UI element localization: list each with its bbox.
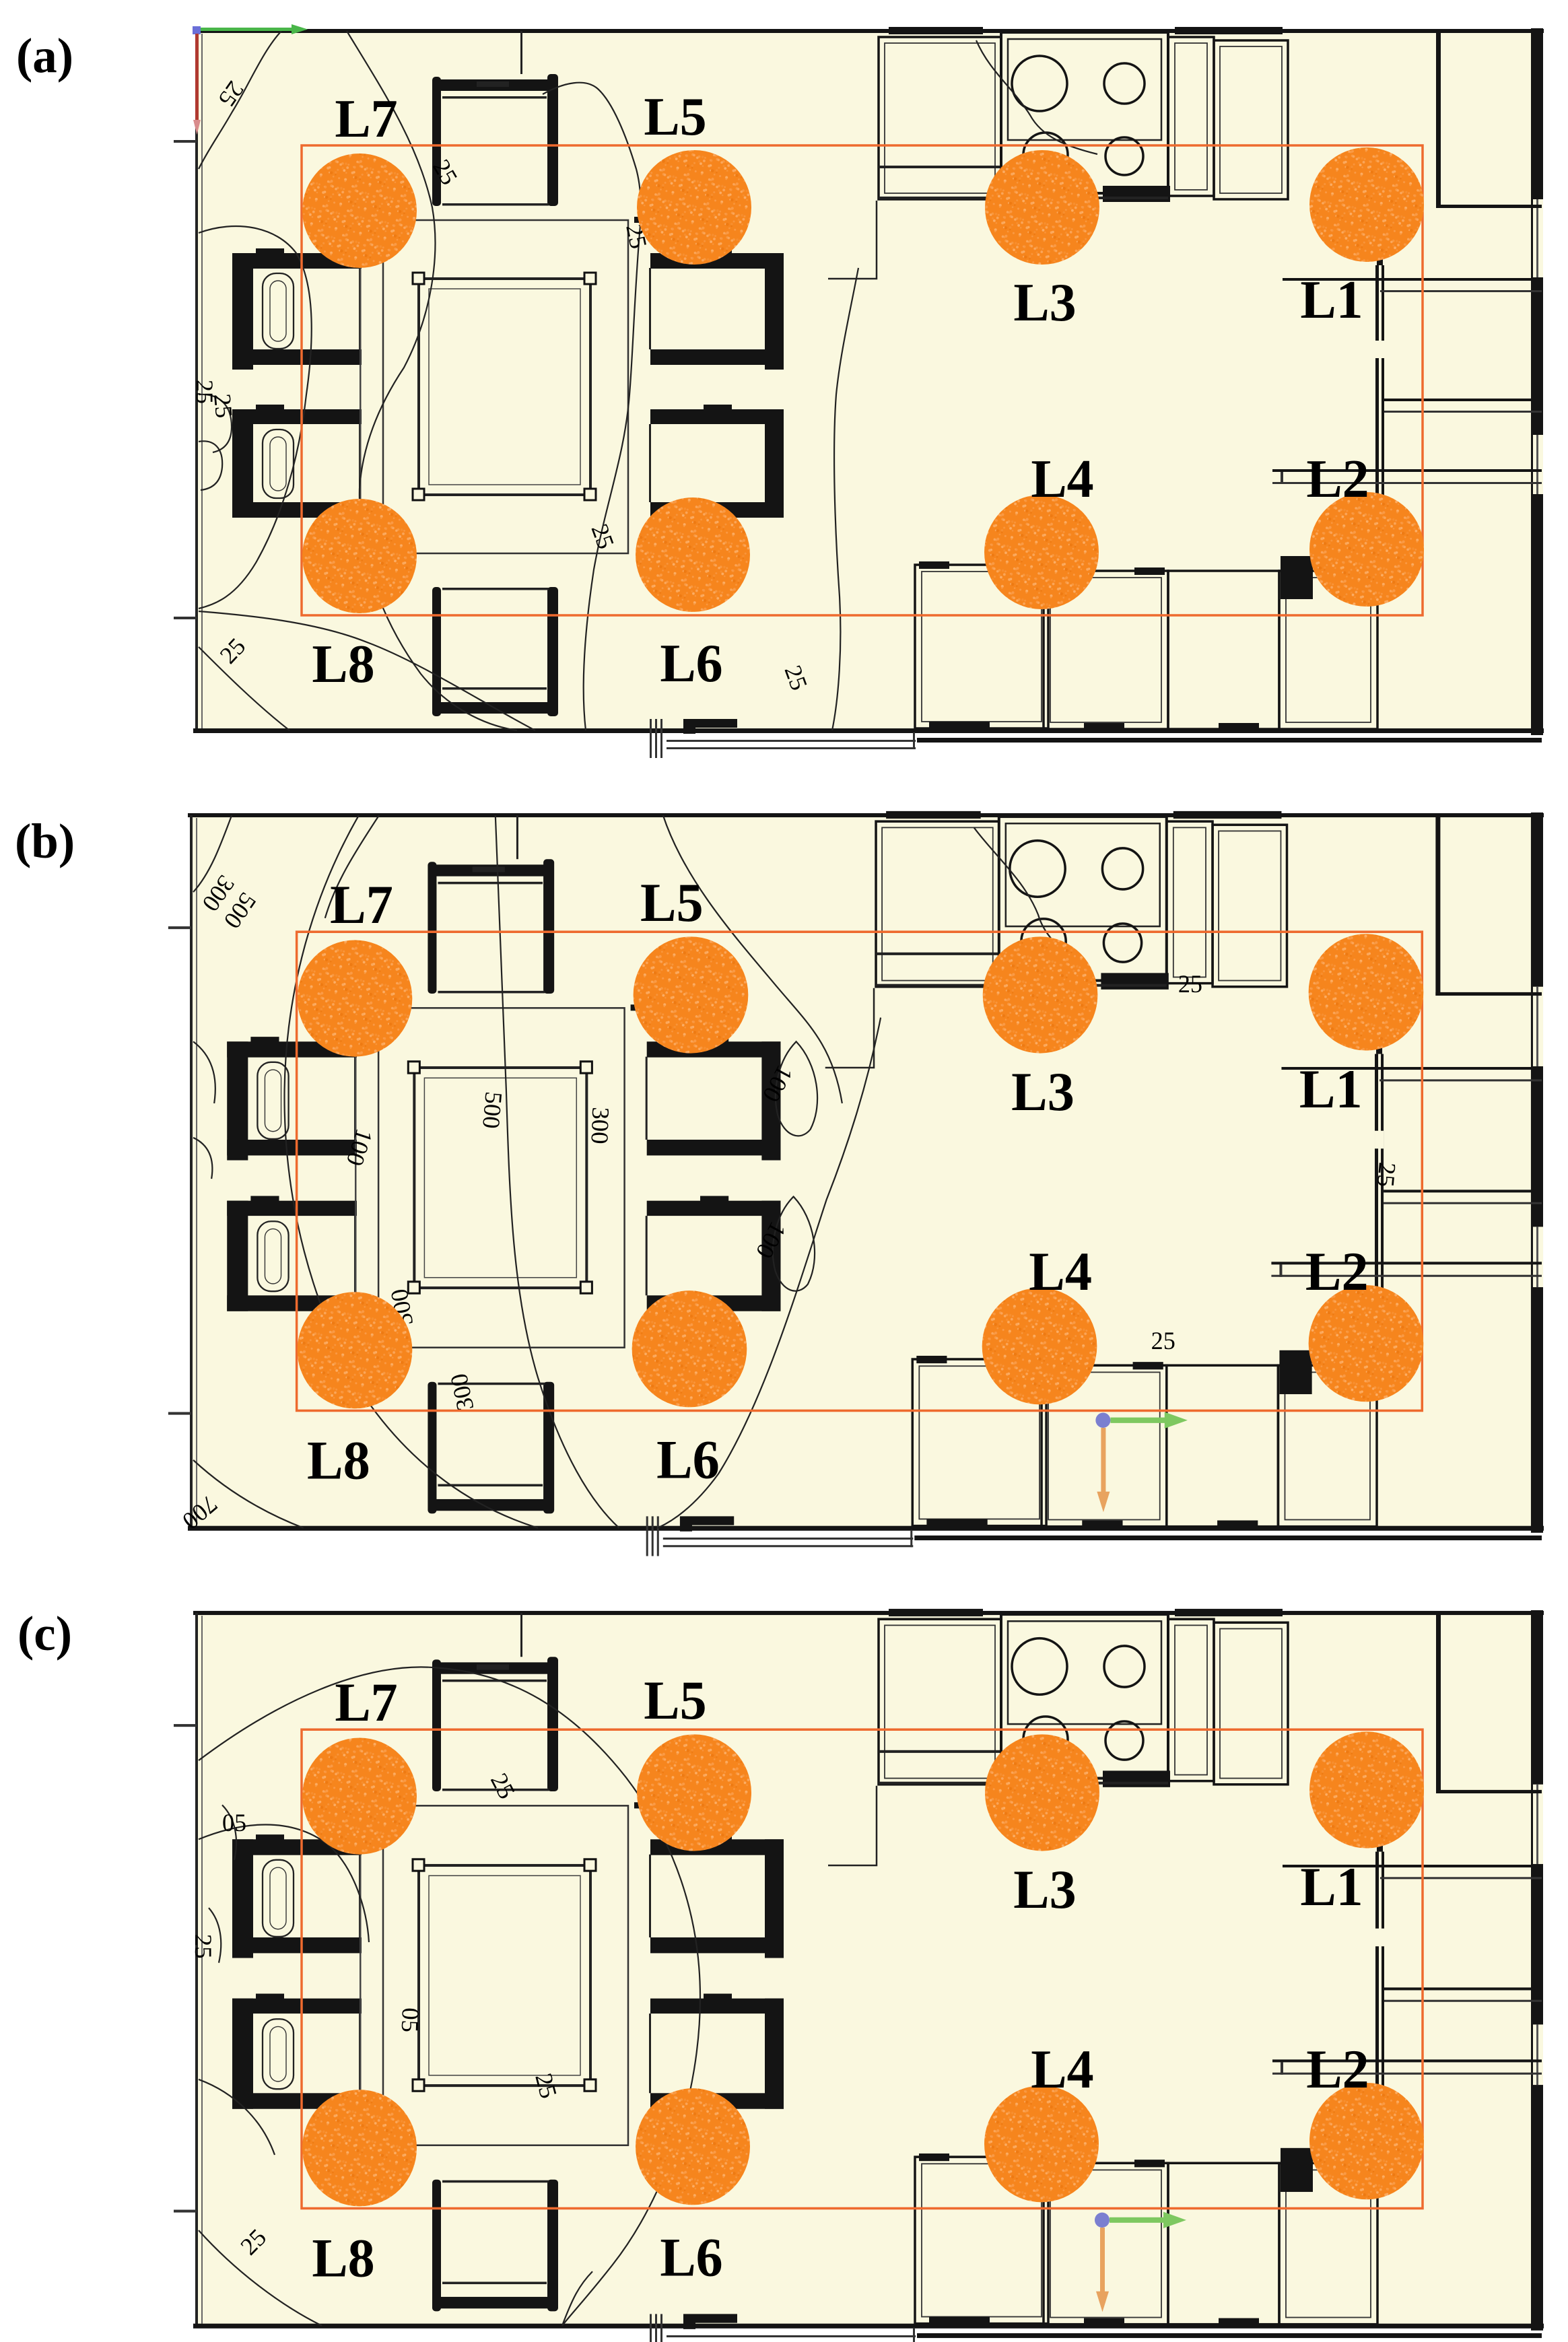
svg-text:25: 25	[1151, 1328, 1175, 1354]
svg-text:05: 05	[397, 2007, 424, 2033]
svg-text:(b): (b)	[15, 814, 75, 868]
svg-text:500: 500	[477, 1091, 507, 1130]
svg-text:25: 25	[190, 1934, 217, 1959]
svg-text:(a): (a)	[16, 28, 73, 83]
svg-text:25: 25	[1178, 971, 1202, 998]
svg-text:(c): (c)	[18, 1606, 72, 1661]
svg-text:05: 05	[222, 1810, 246, 1836]
svg-text:25: 25	[209, 392, 238, 419]
svg-text:300: 300	[586, 1107, 615, 1144]
svg-text:25: 25	[1372, 1161, 1401, 1188]
